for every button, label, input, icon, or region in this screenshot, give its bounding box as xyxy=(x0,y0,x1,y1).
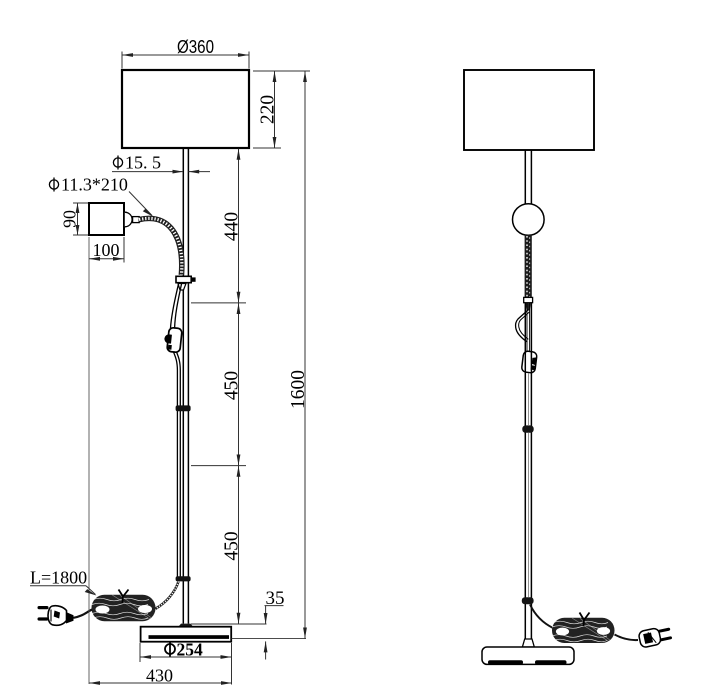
svg-text:L=1800: L=1800 xyxy=(30,568,87,588)
svg-text:15. 5: 15. 5 xyxy=(125,153,161,173)
svg-text:Ø360: Ø360 xyxy=(177,36,214,57)
svg-text:11.3*210: 11.3*210 xyxy=(61,175,128,195)
svg-text:100: 100 xyxy=(93,240,120,260)
svg-text:90: 90 xyxy=(59,210,79,228)
svg-text:220: 220 xyxy=(257,95,278,124)
svg-text:450: 450 xyxy=(221,531,242,560)
svg-text:1600: 1600 xyxy=(288,370,309,409)
svg-text:450: 450 xyxy=(221,371,242,400)
svg-text:254: 254 xyxy=(177,640,204,660)
svg-text:440: 440 xyxy=(221,212,242,241)
svg-text:430: 430 xyxy=(146,666,173,686)
